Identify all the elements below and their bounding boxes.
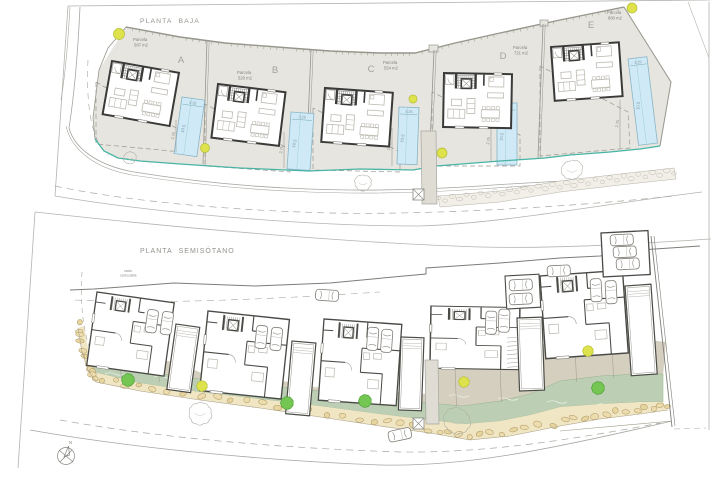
svg-text:vado: vado: [124, 269, 132, 273]
svg-text:Parcela: Parcela: [607, 10, 622, 15]
svg-text:PLANTA BAJA: PLANTA BAJA: [140, 18, 200, 25]
svg-text:Parcela: Parcela: [383, 60, 398, 65]
svg-text:520 m2: 520 m2: [238, 76, 253, 81]
svg-text:N: N: [69, 440, 72, 445]
svg-text:C: C: [368, 64, 375, 75]
svg-text:Parcela: Parcela: [237, 70, 252, 75]
svg-text:880 m2: 880 m2: [608, 16, 623, 21]
svg-text:554 m2: 554 m2: [384, 66, 399, 71]
svg-text:3.25: 3.25: [405, 110, 413, 114]
svg-text:Parcela: Parcela: [513, 45, 528, 50]
svg-text:carrozable: carrozable: [120, 274, 137, 278]
svg-text:PLANTA SEMISÓTANO: PLANTA SEMISÓTANO: [140, 246, 235, 255]
svg-text:721 m2: 721 m2: [514, 51, 529, 56]
svg-text:10.5: 10.5: [635, 101, 640, 110]
svg-text:Parcela: Parcela: [133, 37, 148, 42]
svg-text:D: D: [500, 51, 507, 62]
svg-text:587 m2: 587 m2: [134, 43, 149, 48]
svg-text:E: E: [588, 20, 594, 31]
svg-text:B: B: [272, 65, 278, 76]
svg-text:A: A: [178, 55, 185, 66]
svg-text:3.25: 3.25: [298, 115, 306, 120]
